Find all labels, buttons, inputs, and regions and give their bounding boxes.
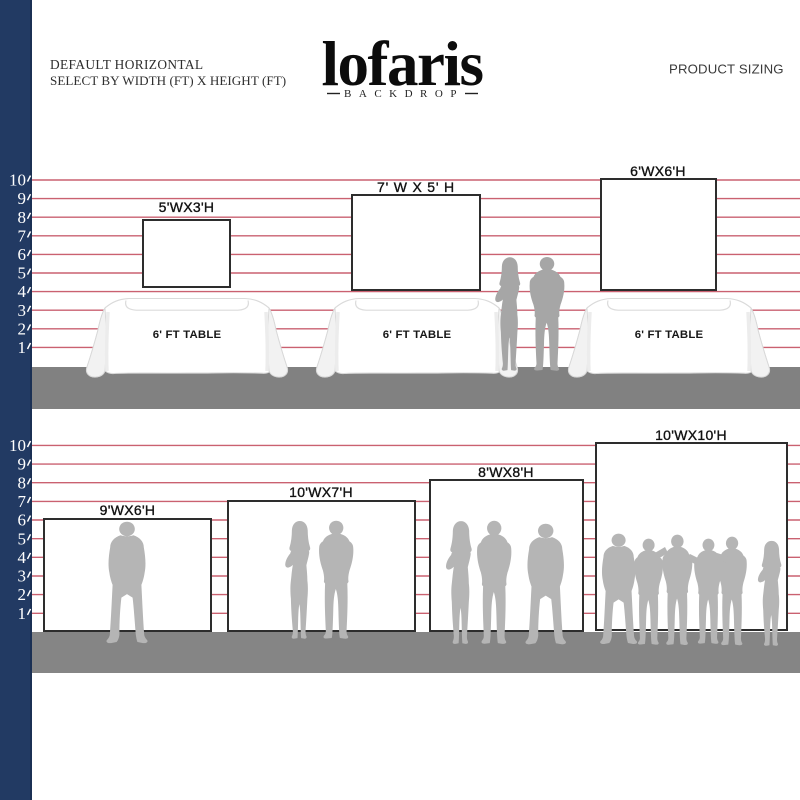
svg-text:10: 10	[9, 436, 26, 455]
svg-text:SELECT BY WIDTH (FT) X HEIGHT: SELECT BY WIDTH (FT) X HEIGHT (FT)	[50, 73, 286, 88]
svg-text:9: 9	[18, 189, 27, 208]
svg-text:6' FT TABLE: 6' FT TABLE	[635, 329, 704, 341]
svg-text:7: 7	[18, 492, 27, 511]
svg-text:10: 10	[9, 171, 26, 190]
svg-text:2: 2	[18, 585, 27, 604]
svg-text:7: 7	[18, 226, 27, 245]
svg-text:BACKDROP: BACKDROP	[344, 88, 464, 100]
svg-text:9: 9	[18, 455, 27, 474]
svg-text:10'WX10'H: 10'WX10'H	[655, 427, 727, 443]
svg-text:9'WX6'H: 9'WX6'H	[100, 502, 156, 518]
svg-text:3: 3	[18, 567, 27, 586]
svg-text:PRODUCT SIZING: PRODUCT SIZING	[669, 62, 784, 77]
svg-text:3: 3	[18, 301, 27, 320]
svg-text:6: 6	[18, 511, 27, 530]
svg-text:DEFAULT HORIZONTAL: DEFAULT HORIZONTAL	[50, 57, 203, 72]
svg-text:5'WX3'H: 5'WX3'H	[159, 199, 215, 215]
svg-text:4: 4	[18, 548, 27, 567]
svg-text:8: 8	[18, 208, 27, 227]
svg-text:6'WX6'H: 6'WX6'H	[630, 163, 686, 179]
svg-text:4: 4	[18, 282, 27, 301]
svg-text:8'WX8'H: 8'WX8'H	[478, 464, 534, 480]
svg-text:2: 2	[18, 319, 27, 338]
svg-text:6: 6	[18, 245, 27, 264]
svg-text:7' W X 5' H: 7' W X 5' H	[377, 179, 455, 195]
svg-text:1: 1	[18, 604, 27, 623]
svg-text:6' FT TABLE: 6' FT TABLE	[383, 329, 452, 341]
svg-text:5: 5	[18, 529, 27, 548]
svg-text:1: 1	[18, 338, 27, 357]
svg-text:10'WX7'H: 10'WX7'H	[289, 484, 353, 500]
svg-text:6' FT TABLE: 6' FT TABLE	[153, 329, 222, 341]
svg-text:5: 5	[18, 264, 27, 283]
svg-text:8: 8	[18, 473, 27, 492]
